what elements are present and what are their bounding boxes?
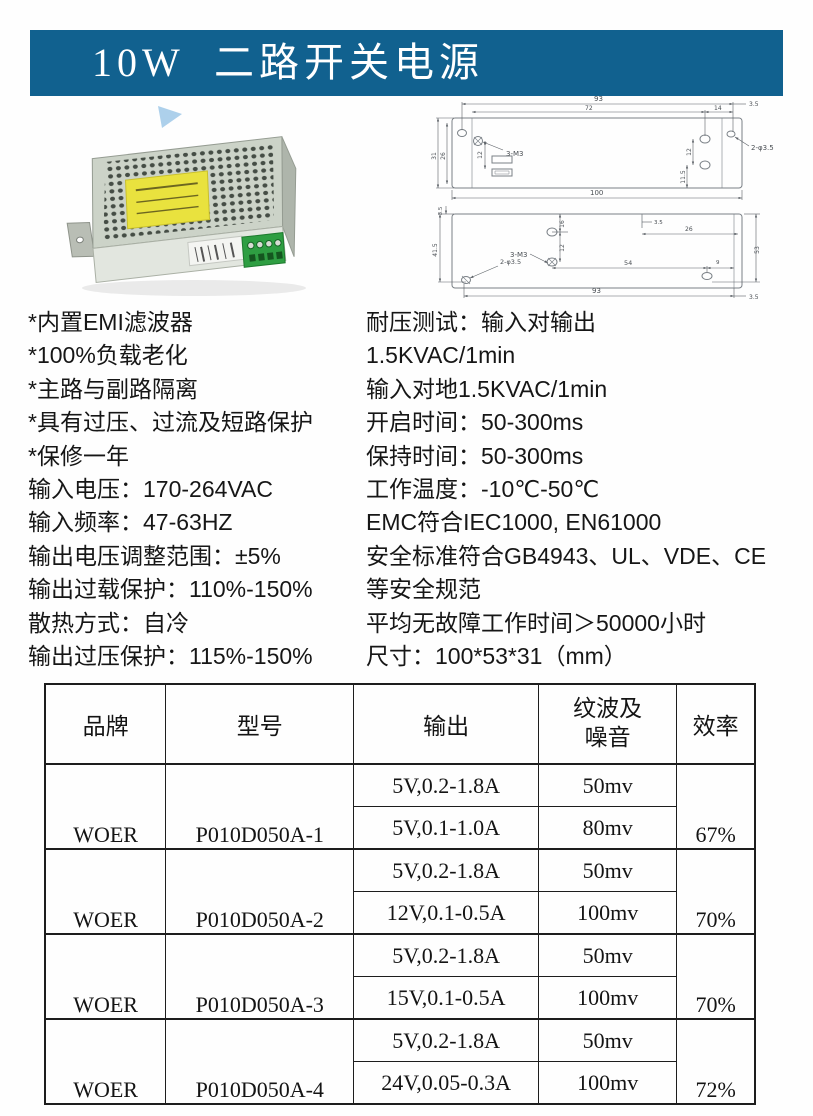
dimension-drawing: 93 72 14 3.5 31 26 12 3-M3 12 11.5 2-φ3.… xyxy=(402,92,806,304)
spec-line: 开启时间：50-300ms xyxy=(366,406,796,439)
dim-label: 2-φ3.5 xyxy=(500,258,521,266)
dim-label: 72 xyxy=(585,105,593,112)
spec-line: 散热方式：自冷 xyxy=(28,607,364,640)
efficiency-cell: 67% xyxy=(677,764,755,849)
output-cell: 24V,0.05-0.3A xyxy=(354,1062,539,1105)
ripple-cell: 50mv xyxy=(538,1019,676,1062)
dim-label: 16 xyxy=(559,220,566,228)
dim-label: 3.5 xyxy=(749,294,759,301)
spec-line: 输出电压调整范围：±5% xyxy=(28,540,364,573)
dim-label: 3.5 xyxy=(654,220,663,226)
spec-line: *保修一年 xyxy=(28,440,364,473)
brand-cell: WOER xyxy=(45,1019,166,1104)
dim-label: 100 xyxy=(590,189,603,197)
dim-label: 2-φ3.5 xyxy=(751,144,774,152)
ripple-cell: 50mv xyxy=(538,934,676,977)
dim-label: 41.5 xyxy=(432,243,439,257)
spec-line: 输出过压保护：115%-150% xyxy=(28,640,364,673)
output-cell: 5V,0.1-1.0A xyxy=(354,807,539,850)
dim-label: 12 xyxy=(686,148,693,156)
dim-label: 12 xyxy=(477,151,484,159)
spec-line: 耐压测试：输入对输出 xyxy=(366,306,796,339)
spec-line: EMC符合IEC1000, EN61000 xyxy=(366,506,796,539)
spec-line: *主路与副路隔离 xyxy=(28,373,364,406)
spec-line: 输出过载保护：110%-150% xyxy=(28,573,364,606)
ripple-cell: 100mv xyxy=(538,977,676,1020)
title-bar: 10W 二路开关电源 xyxy=(30,30,783,96)
dim-label: 53 xyxy=(754,246,761,254)
spec-list-left: *内置EMI滤波器 *100%负载老化 *主路与副路隔离 *具有过压、过流及短路… xyxy=(28,306,364,673)
dim-label: 31 xyxy=(431,152,438,160)
dim-label: 12 xyxy=(559,244,566,252)
table-row: WOER P010D050A-1 5V,0.2-1.8A 50mv 67% xyxy=(45,764,755,807)
spec-line: *100%负载老化 xyxy=(28,339,364,372)
output-cell: 12V,0.1-0.5A xyxy=(354,892,539,935)
brand-cell: WOER xyxy=(45,849,166,934)
dimension-drawing-svg: 93 72 14 3.5 31 26 12 3-M3 12 11.5 2-φ3.… xyxy=(402,92,806,304)
output-cell: 5V,0.2-1.8A xyxy=(354,764,539,807)
dim-label: 3.5 xyxy=(749,101,759,108)
ripple-cell: 50mv xyxy=(538,764,676,807)
brand-cell: WOER xyxy=(45,934,166,1019)
dim-label: 26 xyxy=(685,226,693,233)
output-cell: 5V,0.2-1.8A xyxy=(354,934,539,977)
ripple-cell: 50mv xyxy=(538,849,676,892)
photo-shadow xyxy=(82,280,306,296)
table-row: WOER P010D050A-3 5V,0.2-1.8A 50mv 70% xyxy=(45,934,755,977)
dim-label: 54 xyxy=(624,259,632,267)
output-cell: 15V,0.1-0.5A xyxy=(354,977,539,1020)
table-row: WOER P010D050A-2 5V,0.2-1.8A 50mv 70% xyxy=(45,849,755,892)
spec-line: 1.5KVAC/1min xyxy=(366,339,796,372)
model-cell: P010D050A-4 xyxy=(166,1019,354,1104)
table-header-row: 品牌 型号 输出 纹波及 噪音 效率 xyxy=(45,684,755,764)
photo-blue-glare xyxy=(158,106,182,128)
model-cell: P010D050A-3 xyxy=(166,934,354,1019)
dim-label: 11.5 xyxy=(680,170,687,184)
power-supply-illustration xyxy=(62,104,334,302)
ripple-cell: 100mv xyxy=(538,892,676,935)
flange-hole xyxy=(76,236,84,243)
dim-label: 3.5 xyxy=(438,206,444,215)
spec-line: *具有过压、过流及短路保护 xyxy=(28,406,364,439)
dim-label: 93 xyxy=(594,95,603,103)
product-photo xyxy=(62,104,334,302)
output-cell: 5V,0.2-1.8A xyxy=(354,1019,539,1062)
spec-line: 工作温度：-10℃-50℃ xyxy=(366,473,796,506)
spec-list-right: 耐压测试：输入对输出 1.5KVAC/1min 输入对地1.5KVAC/1min… xyxy=(366,306,796,673)
dim-label: 9 xyxy=(716,260,720,266)
col-header-output: 输出 xyxy=(354,684,539,764)
col-header-ripple: 纹波及 噪音 xyxy=(538,684,676,764)
spec-line: 平均无故障工作时间＞50000小时 xyxy=(366,607,796,640)
spec-line: *内置EMI滤波器 xyxy=(28,306,364,339)
model-table: 品牌 型号 输出 纹波及 噪音 效率 WOER P010D050A-1 5V,0… xyxy=(44,683,756,1105)
col-header-efficiency: 效率 xyxy=(677,684,755,764)
model-cell: P010D050A-2 xyxy=(166,849,354,934)
spec-line: 等安全规范 xyxy=(366,573,796,606)
ripple-cell: 100mv xyxy=(538,1062,676,1105)
dim-label: 93 xyxy=(592,287,601,295)
spec-line: 输入频率：47-63HZ xyxy=(28,506,364,539)
spec-line: 输入电压：170-264VAC xyxy=(28,473,364,506)
col-header-brand: 品牌 xyxy=(45,684,166,764)
ripple-cell: 80mv xyxy=(538,807,676,850)
spec-line: 尺寸：100*53*31（mm） xyxy=(366,640,796,673)
table-row: WOER P010D050A-4 5V,0.2-1.8A 50mv 72% xyxy=(45,1019,755,1062)
model-cell: P010D050A-1 xyxy=(166,764,354,849)
spec-line: 保持时间：50-300ms xyxy=(366,440,796,473)
spec-line: 安全标准符合GB4943、UL、VDE、CE xyxy=(366,540,796,573)
efficiency-cell: 70% xyxy=(677,934,755,1019)
dim-label: 3-M3 xyxy=(506,150,523,158)
col-header-model: 型号 xyxy=(166,684,354,764)
efficiency-cell: 70% xyxy=(677,849,755,934)
efficiency-cell: 72% xyxy=(677,1019,755,1104)
page-title: 10W 二路开关电源 xyxy=(30,30,783,96)
spec-line: 输入对地1.5KVAC/1min xyxy=(366,373,796,406)
dim-label: 26 xyxy=(440,152,447,160)
datasheet-page: 10W 二路开关电源 xyxy=(0,0,813,1116)
brand-cell: WOER xyxy=(45,764,166,849)
dim-label: 14 xyxy=(714,105,722,112)
output-cell: 5V,0.2-1.8A xyxy=(354,849,539,892)
